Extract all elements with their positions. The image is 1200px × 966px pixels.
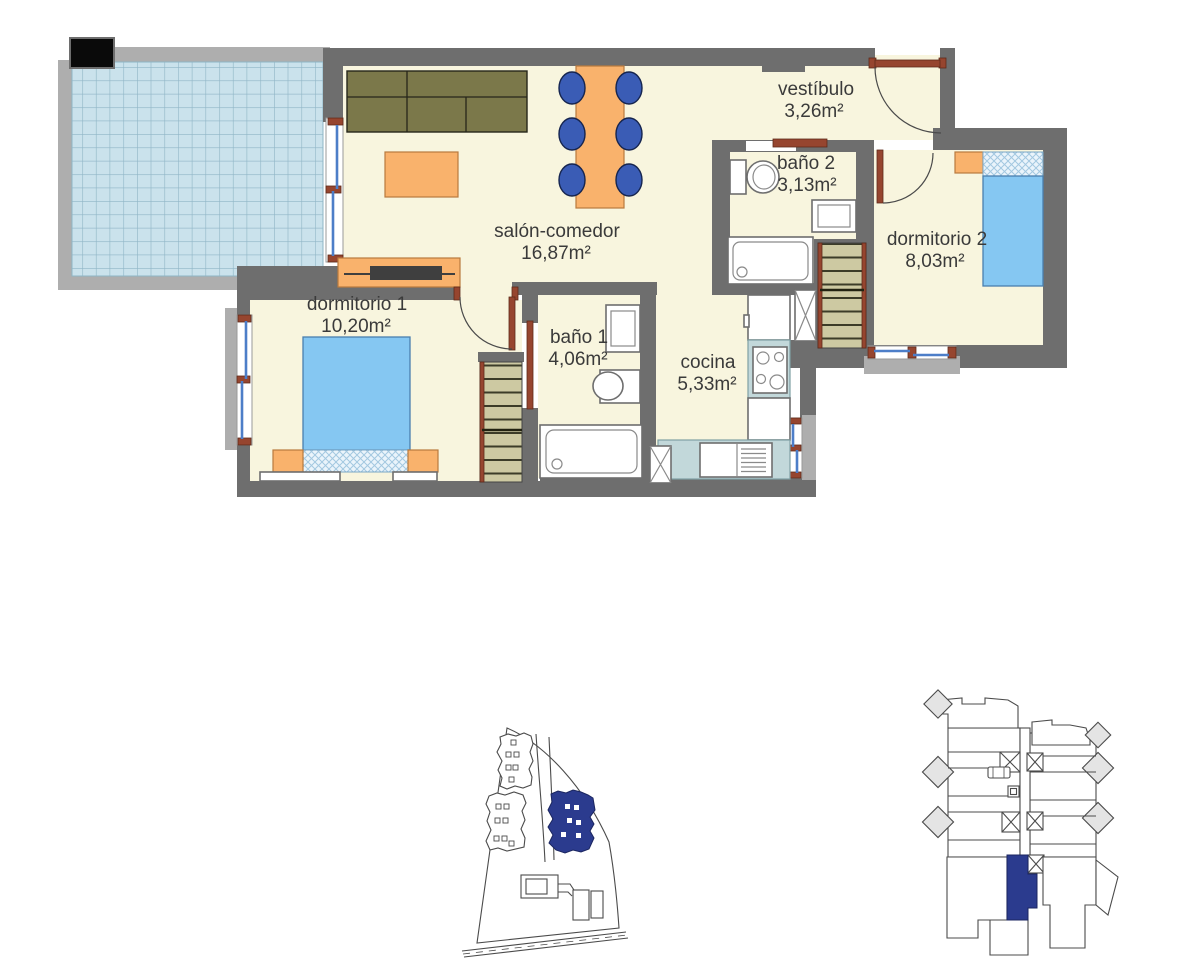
bano1-area: 4,06m² — [548, 349, 607, 370]
floor-plan-page: salón-comedor 16,87m² vestíbulo 3,26m² b… — [0, 0, 1200, 966]
wardrobe-dormitorio2 — [818, 243, 866, 348]
terrace — [58, 38, 330, 290]
bano2-name: baño 2 — [777, 153, 835, 174]
salon-area: 16,87m² — [521, 243, 591, 264]
room-label-bano1: baño 1 4,06m² — [548, 327, 608, 370]
site-annex-1 — [573, 890, 589, 920]
site-annex-2 — [591, 891, 603, 918]
nightstand-right — [408, 450, 438, 472]
sofa — [347, 71, 527, 132]
site-plan-minimap — [462, 728, 628, 957]
wardrobe-dormitorio1 — [480, 362, 522, 482]
single-bed — [983, 176, 1043, 286]
dormitorio2-window — [868, 346, 956, 359]
cocina-window-sill — [802, 415, 816, 480]
room-label-vestibulo: vestíbulo 3,26m² — [778, 79, 854, 122]
toilet-bano2 — [747, 161, 779, 193]
tv — [370, 266, 442, 280]
appliance-laundry-column — [795, 290, 816, 341]
terrace-sliding-door — [326, 118, 343, 262]
kitchen-sink — [700, 443, 772, 477]
building-top-left-block — [940, 698, 1018, 728]
bathtub-bano2 — [728, 237, 813, 284]
toilet-tank-bano2 — [730, 160, 746, 194]
room-label-bano2: baño 2 3,13m² — [777, 153, 837, 196]
site-pool — [521, 875, 574, 898]
north-corner-marker — [70, 38, 114, 68]
kitchen-cabinet-lower — [748, 398, 790, 440]
dormitorio1-window-sill — [225, 308, 237, 450]
terrace-wall-bottom — [58, 276, 240, 290]
bano2-area: 3,13m² — [777, 175, 836, 196]
site-building-highlighted — [548, 790, 595, 853]
nightstand-dorm2 — [955, 152, 983, 173]
terrace-wall-top — [113, 47, 330, 62]
stove — [748, 340, 790, 398]
headboard-right — [393, 472, 437, 481]
room-label-cocina: cocina 5,33m² — [677, 352, 736, 395]
sliding-door-bano1 — [527, 321, 533, 409]
sliding-door-bano2 — [773, 139, 827, 147]
salon-name: salón-comedor — [494, 221, 620, 242]
dormitorio1-name: dormitorio 1 — [307, 294, 407, 315]
cocina-name: cocina — [681, 352, 736, 373]
cocina-area: 5,33m² — [677, 374, 736, 395]
bano1-name: baño 1 — [550, 327, 608, 348]
tv-stand — [338, 258, 460, 287]
vestibulo-name: vestíbulo — [778, 79, 854, 100]
apartment-floor-plan: salón-comedor 16,87m² vestíbulo 3,26m² b… — [0, 0, 1200, 966]
dormitorio2-name: dormitorio 2 — [887, 229, 987, 250]
site-building-2 — [486, 792, 526, 851]
sink-bano1 — [593, 372, 623, 400]
double-bed-pillows — [303, 450, 408, 472]
building-right-wing — [1030, 733, 1096, 857]
dormitorio1-window — [237, 315, 252, 445]
coffee-table — [385, 152, 458, 197]
headboard-left — [260, 472, 340, 481]
appliance-small — [650, 446, 671, 483]
salon-door-opening-floor — [460, 287, 512, 300]
terrace-wall-left — [58, 60, 72, 290]
building-corridor — [1020, 728, 1030, 862]
building-top-right-block — [1032, 720, 1090, 745]
bathtub-bano1 — [540, 425, 642, 478]
site-building-1 — [497, 733, 533, 789]
dormitorio1-area: 10,20m² — [321, 316, 391, 337]
nightstand-left — [273, 450, 303, 472]
double-bed — [303, 337, 410, 450]
dormitorio2-area: 8,03m² — [905, 251, 964, 272]
terrace-tiled-floor — [72, 62, 323, 276]
vestibulo-area: 3,26m² — [784, 101, 843, 122]
single-bed-pillow — [983, 152, 1043, 176]
kitchen-cabinet-upper — [748, 295, 790, 340]
building-floor-minimap — [922, 690, 1118, 955]
